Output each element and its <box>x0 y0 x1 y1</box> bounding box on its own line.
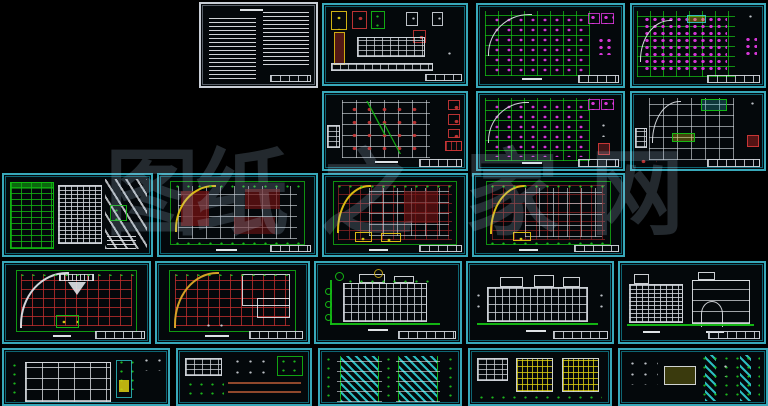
title-block <box>270 75 311 82</box>
tree-outline <box>472 290 484 314</box>
sheet-window-details <box>468 348 612 406</box>
ground-line <box>330 323 439 325</box>
stair-core-outline <box>116 360 132 398</box>
detail-sketch <box>443 48 460 59</box>
side-table <box>744 11 760 24</box>
green-dimension-dots <box>445 355 458 401</box>
drawing-caption <box>216 249 238 251</box>
sheet-structural-plan-b <box>630 3 766 88</box>
drawing-caption <box>368 329 388 331</box>
detail-table <box>185 358 222 376</box>
ground-line <box>477 323 598 325</box>
side-detail-red <box>448 114 461 125</box>
drawing-caption <box>522 78 542 80</box>
title-block <box>574 245 619 252</box>
sheet-detail-and-schedule <box>322 3 468 86</box>
detail-blob <box>331 11 347 30</box>
side-detail <box>588 13 600 24</box>
title-block <box>270 245 311 252</box>
detail-table <box>477 358 508 382</box>
green-dimension-ticks <box>487 182 609 188</box>
side-detail-red <box>448 100 461 111</box>
detail-sketch <box>626 358 658 385</box>
sheet-elevation-b <box>466 261 614 344</box>
dense-white-table <box>58 185 102 244</box>
title-block <box>249 331 303 339</box>
side-detail <box>588 99 600 110</box>
notes-text-column-left <box>209 15 256 79</box>
green-annotation-dots <box>345 277 431 285</box>
green-diagonal-brace <box>374 123 411 153</box>
detail-blob <box>371 11 385 28</box>
rooftop-box <box>634 274 648 283</box>
sheet-foundation-plan <box>322 91 468 171</box>
dark-red-fill <box>245 189 280 208</box>
dark-red-fill <box>404 191 438 223</box>
red-schedule-table <box>445 141 462 151</box>
title-block <box>708 331 760 339</box>
parapet-step <box>534 275 554 287</box>
side-table <box>746 98 761 109</box>
detail-outline <box>664 366 696 384</box>
sheet-title-text <box>240 9 263 11</box>
side-detail <box>601 99 614 110</box>
red-detail-box <box>747 135 759 147</box>
green-dimension-ticks <box>17 271 136 277</box>
drawing-caption <box>522 162 542 164</box>
cad-preview-canvas: { "watermark": { "glyphs": ["图", "纸", "之… <box>0 0 768 400</box>
schedule-table <box>357 37 425 58</box>
ground-line <box>627 324 754 326</box>
sheet-node-details <box>618 348 768 406</box>
drawing-caption <box>526 330 546 332</box>
yellow-window-grid <box>516 358 552 393</box>
green-highlight-box <box>701 99 727 111</box>
interior-walls <box>525 188 602 238</box>
level-bubble <box>325 301 332 308</box>
stair-landings <box>337 356 382 402</box>
mini-table <box>635 128 647 148</box>
yellow-detail-box <box>355 232 372 242</box>
title-block <box>398 331 456 339</box>
side-rebar-detail <box>744 36 757 55</box>
green-highlight-box <box>672 133 696 143</box>
sheet-elevation-a <box>314 261 462 344</box>
white-detail-cluster <box>202 320 226 329</box>
level-bubble <box>325 314 332 321</box>
title-block <box>419 245 462 252</box>
red-detail-cluster <box>636 155 657 165</box>
sheet-floor-plan-1 <box>157 173 318 257</box>
title-block <box>578 159 619 167</box>
title-block <box>553 331 608 339</box>
detail-sketch <box>231 356 265 378</box>
title-block <box>425 74 462 81</box>
side-rebar-detail <box>597 120 612 137</box>
sheet-structural-plan-a <box>476 3 625 88</box>
detail-blob <box>432 12 443 26</box>
stepped-outline <box>257 298 290 319</box>
green-dimension-ticks <box>334 182 456 188</box>
sheet-floor-plan-3 <box>472 173 625 257</box>
notes-text-column-right <box>263 12 309 64</box>
facade-windows <box>487 287 588 323</box>
side-rebar-detail <box>597 37 612 55</box>
hatched-facade <box>629 284 684 324</box>
sheet-structural-plan-c <box>476 91 625 171</box>
parapet-step <box>563 277 580 286</box>
green-table-header <box>10 182 54 188</box>
long-strip-table <box>331 63 433 71</box>
brown-pipe-line <box>228 382 301 384</box>
detail-sketch <box>277 356 303 375</box>
green-yellow-detail <box>56 315 79 328</box>
side-detail-red <box>448 129 461 138</box>
sheet-stair-sections <box>318 348 462 406</box>
drawing-caption <box>53 335 70 337</box>
green-dimension-dots <box>383 355 394 401</box>
title-block <box>707 159 760 167</box>
title-block <box>95 331 144 339</box>
grid-bubble <box>335 272 344 281</box>
sheet-roof-plan-a <box>2 261 151 344</box>
section-frame-grid <box>25 362 110 402</box>
sheet-construction-details <box>176 348 312 406</box>
sheet-roof-plan-b <box>155 261 310 344</box>
detail-blob <box>352 11 366 28</box>
green-level-marks <box>9 361 22 402</box>
detail-blob <box>406 12 417 26</box>
detail-column <box>334 32 345 65</box>
highlight-box <box>687 15 705 23</box>
drawing-caption <box>369 249 387 251</box>
brown-pipe-line <box>228 391 301 393</box>
green-dimension-ticks <box>172 182 304 188</box>
sheet-site-plan-and-schedules <box>2 173 153 257</box>
sheet-elevation-and-section <box>618 261 766 344</box>
sheet-building-section <box>2 348 170 406</box>
green-dimension-dots <box>185 380 225 396</box>
drawing-caption <box>375 161 398 163</box>
detail-cluster <box>140 355 163 370</box>
sheet-floor-plan-2 <box>322 173 468 257</box>
yellow-window-grid <box>562 358 598 393</box>
detail-sketch <box>719 361 737 377</box>
tree-outline <box>595 290 607 314</box>
side-detail <box>601 13 614 24</box>
facade-windows <box>343 283 427 323</box>
drawing-caption <box>643 331 660 333</box>
title-block <box>578 75 619 82</box>
green-dimension-dots <box>323 355 336 401</box>
mini-table <box>327 125 340 148</box>
title-block <box>419 159 462 167</box>
drawing-caption <box>205 335 229 337</box>
dark-red-fill <box>234 217 275 235</box>
level-bubble <box>325 288 332 295</box>
triangle-skylight <box>68 282 86 295</box>
red-detail-box <box>598 143 610 155</box>
site-notes <box>107 235 136 249</box>
site-green-patch <box>110 205 128 221</box>
sheet-roof-framing-plan <box>630 91 766 171</box>
rooftop-box <box>698 272 715 280</box>
drawing-caption <box>519 249 538 251</box>
green-schedule-table <box>10 182 54 248</box>
green-dimension-ticks <box>171 271 295 277</box>
sheet-general-notes <box>199 2 318 88</box>
yellow-detail-box <box>381 233 401 242</box>
parapet-step <box>500 277 523 286</box>
title-block <box>707 75 760 82</box>
stair-landings <box>396 356 441 402</box>
